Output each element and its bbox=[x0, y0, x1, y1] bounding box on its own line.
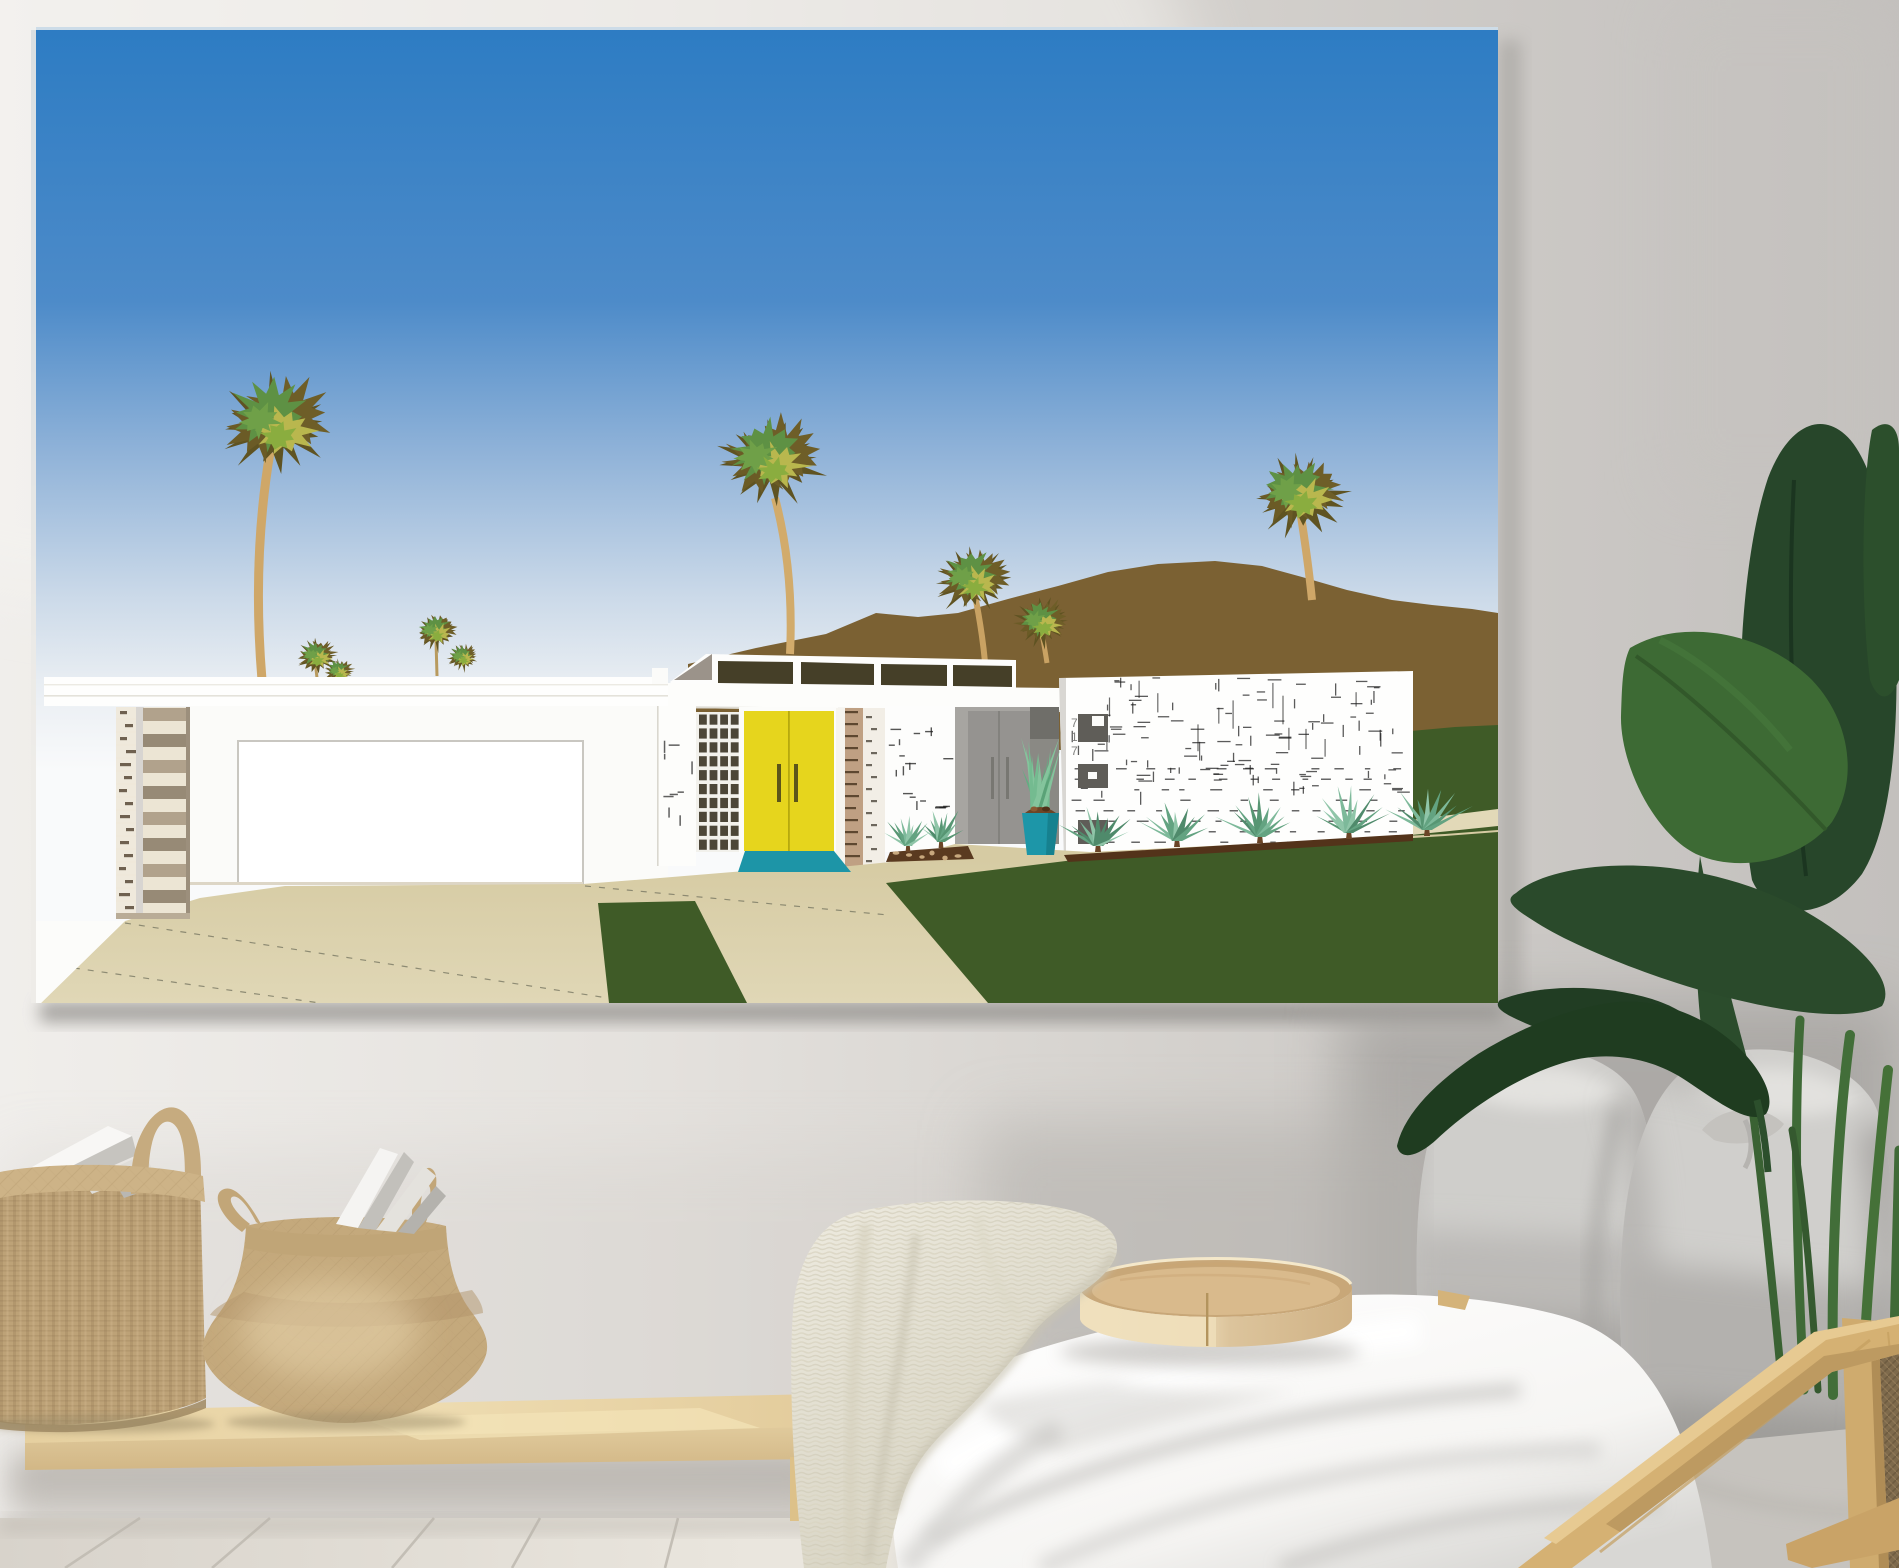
svg-text:7: 7 bbox=[1071, 744, 1078, 758]
svg-text:7: 7 bbox=[1071, 716, 1078, 730]
svg-text:1: 1 bbox=[1071, 730, 1078, 744]
